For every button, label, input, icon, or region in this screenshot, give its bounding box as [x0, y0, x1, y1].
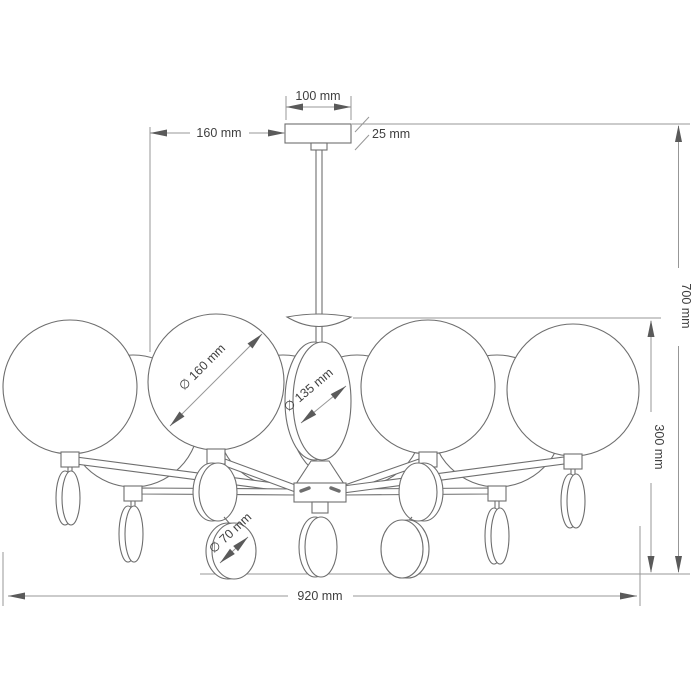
ornament-disc-face — [125, 506, 143, 562]
dimension-300mm: 300 mm — [648, 320, 667, 573]
chandelier-dimension-drawing: 100 mm 160 mm 25 mm 700 mm 300 mm — [0, 0, 700, 700]
dimension-25mm: 25 mm — [355, 117, 410, 150]
drawing-svg: 100 mm 160 mm 25 mm 700 mm 300 mm — [0, 0, 700, 700]
arrowhead-left — [286, 104, 303, 111]
dimension-700mm: 700 mm — [675, 125, 693, 573]
dimension-160mm: 160 mm — [150, 126, 285, 140]
arrowhead-up — [675, 125, 682, 142]
hub-stem — [312, 502, 328, 513]
saucer-dish — [287, 314, 351, 327]
arrowhead-left — [8, 593, 25, 600]
dimension-label-canopy-height: 25 mm — [372, 127, 410, 141]
canopy-collar — [311, 143, 327, 150]
dimension-label-total-height: 700 mm — [679, 283, 693, 328]
dimension-label-canopy-width: 100 mm — [295, 89, 340, 103]
central-assembly — [285, 124, 351, 577]
dimension-label-hang-offset: 160 mm — [196, 126, 241, 140]
dimension-label-total-width: 920 mm — [297, 589, 342, 603]
dimension-920mm: 920 mm — [8, 589, 637, 603]
ornament-disc-face — [305, 517, 337, 577]
tick-bottom — [355, 135, 369, 150]
ornament-disc-face — [567, 474, 585, 528]
arrowhead-right — [620, 593, 637, 600]
globe-fitting-2 — [207, 449, 225, 464]
ornament-disc-edge — [381, 520, 423, 578]
dimension-100mm: 100 mm — [286, 89, 351, 111]
dimension-label-total-height-group: 700 mm — [679, 283, 693, 328]
globe-fitting-rear-1 — [124, 486, 142, 501]
glass-globe-3 — [361, 320, 495, 454]
ornament-disc-face — [491, 508, 509, 564]
dimension-label-fixture-height-group: 300 mm — [652, 424, 666, 469]
ornament-disc-face — [62, 471, 80, 525]
ornament-disc-face — [199, 463, 237, 521]
glass-globe-1 — [3, 320, 137, 454]
arrowhead-left — [150, 130, 167, 137]
arrowhead-right — [268, 130, 285, 137]
arrowhead-down — [648, 556, 655, 573]
globe-fitting-4 — [564, 454, 582, 469]
globe-fitting-1 — [61, 452, 79, 467]
arrowhead-up — [648, 320, 655, 337]
ceiling-canopy — [285, 124, 351, 143]
ornament-disc-edge — [399, 463, 437, 521]
glass-globe-4 — [507, 324, 639, 456]
glass-globe-2 — [148, 314, 284, 450]
globe-fitting-rear-4 — [488, 486, 506, 501]
arrowhead-down — [675, 556, 682, 573]
dimension-label-fixture-height: 300 mm — [652, 424, 666, 469]
arrowhead-right — [334, 104, 351, 111]
